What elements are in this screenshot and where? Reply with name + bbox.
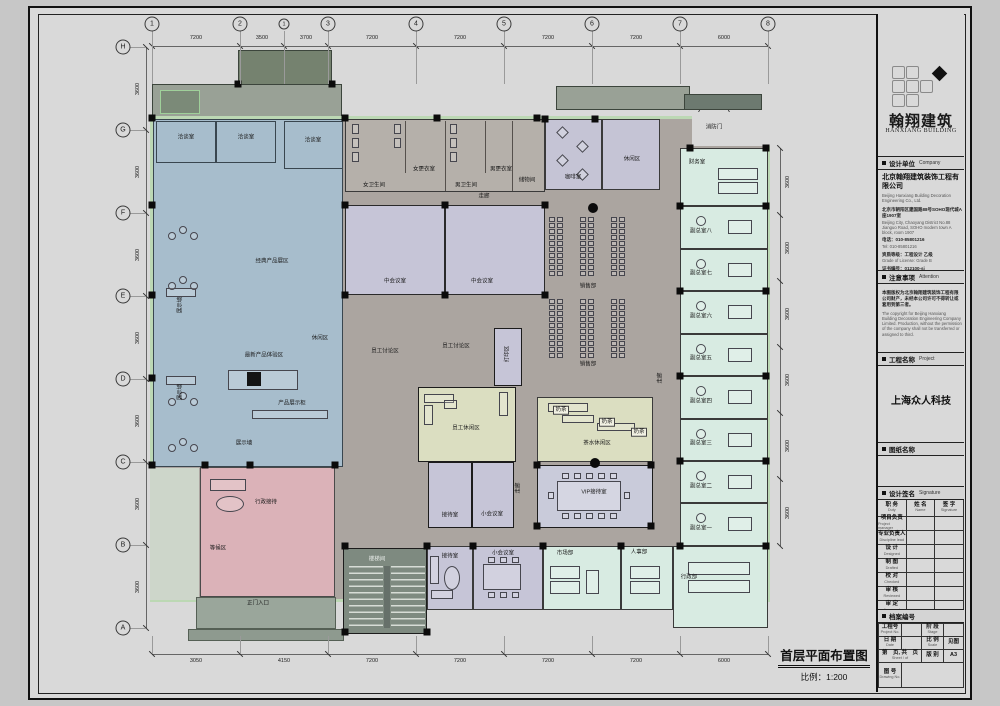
desk-seat: [588, 265, 594, 270]
desk-seat: [611, 217, 617, 222]
grid-stem: [328, 31, 329, 84]
grid-bubble: 1: [145, 17, 160, 32]
company-address-cn: 北京市朝阳区建国路88号SOHO现代城A座1907室: [882, 207, 962, 219]
furniture: [500, 592, 507, 598]
section-label-cn: 图纸名称: [889, 444, 915, 454]
signature-cell: 签 字Signature: [935, 500, 964, 516]
desk-seat: [557, 217, 563, 222]
grid-stem: [130, 628, 146, 629]
desk: [728, 305, 752, 319]
dim-value: 7200: [366, 35, 378, 41]
furniture: [630, 581, 660, 594]
furniture: [557, 481, 621, 511]
furniture: [586, 570, 599, 594]
room-label: VIP接待室: [581, 490, 606, 496]
desk: [728, 517, 752, 531]
desk-seat: [557, 241, 563, 246]
grid-stem: [130, 379, 146, 380]
structural-column: [763, 203, 770, 210]
room-label: 销售部: [580, 362, 597, 368]
dim-value: 3600: [785, 308, 791, 320]
furniture: [488, 592, 495, 598]
structural-column: [434, 115, 441, 122]
desk-seat: [588, 347, 594, 352]
title-block: 翰翔建筑 HANXIANG BUILDING 设计单位 Company 北京翰翔…: [876, 14, 964, 692]
furniture: [168, 282, 176, 290]
furniture: [216, 496, 244, 512]
structural-column: [202, 462, 209, 469]
company-name-en: Beijing Hanxiang Building Decoration Eng…: [882, 193, 962, 204]
desk-seat: [580, 229, 586, 234]
furniture: [352, 152, 359, 162]
drawing-title: 首层平面布置图 比例：1:200: [776, 645, 872, 683]
desk-seat: [557, 247, 563, 252]
signature-row: 校 对Checked: [878, 573, 964, 587]
furniture: [574, 513, 581, 519]
desk-seat: [549, 311, 555, 316]
signature-cell: [935, 573, 964, 586]
grid-stem: [130, 47, 146, 48]
structural-column: [342, 543, 349, 550]
section-label-cn: 档案编号: [889, 611, 915, 621]
room-label: 女更衣室: [413, 167, 435, 173]
room-label: 产品展示柜: [278, 401, 306, 407]
attention-text-cn: 本图版权为北京翰翔建筑装饰工程有限公司财产，未经本公司许可不得转让或套用到第三者…: [882, 290, 962, 308]
furniture: [450, 138, 457, 148]
furniture: [512, 557, 519, 563]
room-label: 中会议室: [471, 279, 493, 285]
desk-seat: [580, 341, 586, 346]
desk-seat: [588, 323, 594, 328]
room-label: 楼梯间: [369, 557, 386, 563]
structural-column: [332, 462, 339, 469]
room-label: 行政接待: [255, 500, 277, 506]
furniture: [548, 492, 554, 499]
desk-seat: [580, 329, 586, 334]
furniture: [485, 121, 486, 173]
room-canopy-right: [684, 94, 762, 110]
room-label: 副总室四: [690, 399, 712, 405]
room-label: 咖啡室: [565, 175, 582, 181]
room-meeting-mid-right: [445, 205, 545, 295]
dim-value: 7200: [454, 35, 466, 41]
desk-seat: [580, 311, 586, 316]
desk-seat: [611, 317, 617, 322]
desk-seat: [557, 347, 563, 352]
company-info: 北京翰翔建筑装饰工程有限公司 Beijing Hanxiang Building…: [882, 174, 962, 278]
room-vp-office-2: [680, 461, 768, 503]
furniture: [500, 557, 507, 563]
structural-column: [149, 462, 156, 469]
furniture: [190, 398, 198, 406]
section-marker-icon: [882, 447, 886, 451]
room-label: 走廊: [478, 194, 489, 200]
room-label: 洽谈室: [178, 135, 195, 141]
room-label: 女卫生间: [363, 183, 385, 189]
desk-seat: [557, 223, 563, 228]
grid-bubble: 2: [233, 17, 248, 32]
furniture: [190, 232, 198, 240]
desk-seat: [588, 259, 594, 264]
structural-column: [542, 292, 549, 299]
desk-seat: [611, 323, 617, 328]
room-label: 打印区: [505, 346, 511, 363]
room-label: 市场部: [557, 551, 574, 557]
room-label: 展示墙: [178, 384, 184, 401]
chair: [696, 429, 706, 439]
furniture: [610, 473, 617, 479]
furniture: [562, 473, 569, 479]
desk-seat: [580, 259, 586, 264]
grid-stem: [328, 636, 329, 654]
chair: [696, 471, 706, 481]
desk-seat: [557, 335, 563, 340]
desk-seat: [619, 347, 625, 352]
desk-seat: [580, 271, 586, 276]
grid-bubble: A: [116, 621, 131, 636]
room-label: 储物间: [519, 178, 536, 184]
desk-seat: [611, 335, 617, 340]
desk-seat: [557, 253, 563, 258]
signature-cell: [935, 587, 964, 600]
room-label: 男更衣室: [490, 167, 512, 173]
dim-value: 7200: [542, 35, 554, 41]
dim-value: 3600: [785, 374, 791, 386]
desk-seat: [619, 235, 625, 240]
size-value: A3: [943, 649, 964, 663]
room-canopy-tower: [238, 50, 332, 88]
structural-column: [149, 202, 156, 209]
grid-bubble: C: [116, 455, 131, 470]
grid-stem: [130, 545, 146, 546]
dim-value: 7200: [630, 658, 642, 664]
desk-seat: [588, 253, 594, 258]
furniture: [718, 182, 758, 194]
signature-cell: [907, 559, 936, 572]
section-archive: 档案编号: [878, 609, 964, 623]
furniture: [384, 566, 390, 628]
grid-bubble: 7: [673, 17, 688, 32]
room-label: 奶茶: [553, 406, 569, 415]
desk-seat: [588, 299, 594, 304]
furniture: [488, 557, 495, 563]
desk-seat: [580, 217, 586, 222]
room-label: 展示墙: [178, 297, 184, 314]
grid-bubble: 1: [279, 19, 290, 30]
room-label: 休闲区: [312, 336, 329, 342]
dim-line: [146, 47, 147, 628]
desk-seat: [588, 241, 594, 246]
floor-plan: 洽谈室洽谈室洽谈室展示墙展示墙展示墙经典产品展区休闲区最新产品体验区产品展示柜行…: [0, 0, 1000, 706]
furniture: [718, 168, 758, 180]
room-label: 员工讨论区: [442, 344, 470, 350]
signature-cell: [935, 559, 964, 572]
grid-stem: [152, 31, 153, 84]
section-marker-icon: [882, 275, 886, 279]
room-canopy-mid: [556, 86, 690, 110]
room-label: 男卫生间: [455, 183, 477, 189]
desk-seat: [611, 305, 617, 310]
signature-cell: [907, 531, 936, 544]
desk-seat: [580, 347, 586, 352]
furniture: [688, 580, 750, 593]
section-project: 工程名称 Project: [878, 352, 964, 366]
signature-cell: 校 对Checked: [878, 573, 907, 586]
structural-column: [763, 145, 770, 152]
grid-bubble: B: [116, 538, 131, 553]
grid-stem: [504, 31, 505, 84]
chair: [696, 513, 706, 523]
desk-seat: [588, 247, 594, 252]
structural-column: [763, 458, 770, 465]
desk-seat: [611, 259, 617, 264]
structural-column: [424, 629, 431, 636]
signature-cell: 项目负责Project manager: [878, 517, 907, 530]
logo-text-en: HANXIANG BUILDING: [878, 128, 964, 134]
desk-seat: [557, 317, 563, 322]
desk-seat: [588, 335, 594, 340]
structural-column: [677, 373, 684, 380]
desk-seat: [549, 265, 555, 270]
desk-seat: [588, 329, 594, 334]
company-phone-en: Tel: 010-85801216: [882, 244, 962, 249]
attention-text-en: The copyright for Beijing Hanxiang Build…: [882, 311, 962, 337]
room-label: 销售部: [580, 284, 597, 290]
dim-line: [152, 46, 768, 47]
furniture: [688, 562, 750, 575]
structural-column: [342, 292, 349, 299]
desk-seat: [588, 229, 594, 234]
signature-cell: [935, 531, 964, 544]
room-label: 小会议室: [481, 512, 503, 518]
desk-seat: [611, 241, 617, 246]
room-label: 走廊: [658, 372, 664, 383]
room-label: 中会议室: [384, 279, 406, 285]
dim-value: 7200: [630, 35, 642, 41]
desk-seat: [619, 341, 625, 346]
desk-seat: [549, 253, 555, 258]
drawing-name-box: [878, 456, 964, 487]
room-label: 员工讨论区: [371, 349, 399, 355]
furniture: [168, 444, 176, 452]
furniture: [444, 566, 460, 590]
furniture: [394, 124, 401, 134]
furniture: [179, 226, 187, 234]
chair: [696, 216, 706, 226]
grid-stem: [240, 636, 241, 654]
room-label: 茶水休闲区: [583, 441, 611, 447]
desk-seat: [580, 241, 586, 246]
desk-seat: [549, 241, 555, 246]
furniture: [444, 400, 457, 409]
signature-cell: 专业负责人Discipline lead: [878, 531, 907, 544]
desk-seat: [611, 229, 617, 234]
grid-stem: [592, 636, 593, 654]
desk-seat: [588, 341, 594, 346]
grid-stem: [416, 31, 417, 84]
structural-column: [342, 202, 349, 209]
signature-cell: 设 计Designed: [878, 545, 907, 558]
desk-seat: [549, 247, 555, 252]
structural-column: [424, 543, 431, 550]
desk-seat: [588, 271, 594, 276]
signature-row: 项目负责Project manager: [878, 517, 964, 531]
dim-value: 3700: [300, 35, 312, 41]
structural-column: [342, 629, 349, 636]
dim-value: 3500: [256, 35, 268, 41]
furniture: [445, 121, 446, 191]
structural-column: [677, 288, 684, 295]
room-label: 副总室八: [690, 229, 712, 235]
scale-value: 见图: [943, 636, 964, 650]
furniture: [431, 590, 453, 599]
room-label: 财务室: [689, 160, 706, 166]
attention-note: 本图版权为北京翰翔建筑装饰工程有限公司财产，未经本公司许可不得转让或套用到第三者…: [882, 288, 962, 337]
desk-seat: [580, 265, 586, 270]
desk-seat: [557, 353, 563, 358]
chair: [696, 301, 706, 311]
room-label: 副总室三: [690, 441, 712, 447]
grid-bubble: H: [116, 40, 131, 55]
signature-cell: [935, 517, 964, 530]
furniture: [562, 415, 594, 423]
structural-column: [763, 288, 770, 295]
room-label: 行政部: [681, 575, 698, 581]
chair: [696, 259, 706, 269]
desk-seat: [619, 265, 625, 270]
structural-column: [470, 543, 477, 550]
room-label: 正门入口: [247, 601, 269, 607]
logo-square: [906, 80, 919, 93]
grid-bubble: 4: [409, 17, 424, 32]
dim-value: 6000: [718, 35, 730, 41]
signature-cell: 姓 名Name: [907, 500, 936, 516]
section-marker-icon: [882, 491, 886, 495]
furniture: [499, 392, 508, 416]
desk-seat: [611, 299, 617, 304]
room-label: 奶茶: [599, 418, 615, 427]
date-value: [901, 636, 922, 650]
desk-seat: [619, 323, 625, 328]
structural-column: [677, 203, 684, 210]
desk-seat: [549, 229, 555, 234]
furniture: [550, 566, 580, 579]
desk-seat: [580, 299, 586, 304]
logo-square: [892, 94, 905, 107]
desk-seat: [611, 235, 617, 240]
grid-stem: [240, 31, 241, 84]
structural-column: [677, 543, 684, 550]
structural-column: [534, 462, 541, 469]
dim-value: 7200: [190, 35, 202, 41]
room-bg-patch-bl: [150, 468, 199, 600]
dim-value: 7200: [454, 658, 466, 664]
desk-seat: [580, 323, 586, 328]
desk-seat: [619, 271, 625, 276]
stage-label: 阶 段Stage: [921, 623, 944, 637]
signature-row: 设 计Designed: [878, 545, 964, 559]
structural-column: [763, 543, 770, 550]
furniture: [190, 282, 198, 290]
logo-diamond-icon: [932, 66, 948, 82]
grid-stem: [768, 31, 769, 84]
furniture: [430, 556, 439, 584]
grid-bubble: 8: [761, 17, 776, 32]
room-label: 接待室: [442, 554, 459, 560]
dim-value: 3600: [785, 506, 791, 518]
grid-bubble: 3: [321, 17, 336, 32]
desk-seat: [588, 217, 594, 222]
desk-seat: [580, 353, 586, 358]
desk-seat: [580, 335, 586, 340]
desk-seat: [588, 317, 594, 322]
room-label: 走廊: [516, 482, 522, 493]
dim-value: 4150: [278, 658, 290, 664]
company-name-cn: 北京翰翔建筑装饰工程有限公司: [882, 174, 962, 192]
furniture: [450, 124, 457, 134]
room-label: 员工休闲区: [452, 426, 480, 432]
signature-row: 审 核Reviewed: [878, 587, 964, 601]
structural-column: [149, 115, 156, 122]
section-marker-icon: [882, 614, 886, 618]
drawing-scale-text: 比例：1:200: [776, 671, 872, 683]
dim-value: 3600: [135, 331, 141, 343]
structural-column: [648, 462, 655, 469]
grid-stem: [504, 636, 505, 654]
desk-seat: [611, 341, 617, 346]
furniture: [179, 438, 187, 446]
desk-seat: [549, 353, 555, 358]
desk-seat: [580, 235, 586, 240]
section-label-cn: 工程名称: [889, 354, 915, 364]
dim-value: 7200: [542, 658, 554, 664]
logo-square: [906, 94, 919, 107]
section-label-cn: 设计签名: [889, 488, 915, 498]
room-label: 人事部: [631, 550, 648, 556]
desk-seat: [611, 223, 617, 228]
room-bg-patch-tr: [692, 112, 774, 146]
furniture: [424, 405, 433, 425]
room-canopy-left-inner: [160, 90, 200, 114]
signature-row: 专业负责人Discipline lead: [878, 531, 964, 545]
desk-seat: [619, 241, 625, 246]
desk-seat: [619, 311, 625, 316]
structural-column: [540, 543, 547, 550]
desk-seat: [549, 305, 555, 310]
grid-bubble: F: [116, 206, 131, 221]
desk-seat: [619, 335, 625, 340]
room-label: 副总室一: [690, 526, 712, 532]
room-label: 副总室七: [690, 271, 712, 277]
structural-column: [329, 81, 336, 88]
drawing-title-text: 首层平面布置图: [778, 645, 870, 668]
furniture: [228, 370, 298, 390]
desk-seat: [619, 229, 625, 234]
furniture: [252, 410, 328, 419]
grid-stem: [592, 31, 593, 84]
desk-seat: [588, 353, 594, 358]
desk-seat: [549, 317, 555, 322]
grid-stem: [680, 636, 681, 654]
section-label-en: Signature: [919, 490, 940, 496]
room-label: 休闲区: [624, 157, 641, 163]
desk-seat: [557, 323, 563, 328]
dim-value: 6000: [718, 658, 730, 664]
desk-seat: [557, 341, 563, 346]
room-label: 洽谈室: [238, 135, 255, 141]
furniture: [574, 473, 581, 479]
room-label: 经典产品展区: [255, 259, 288, 265]
